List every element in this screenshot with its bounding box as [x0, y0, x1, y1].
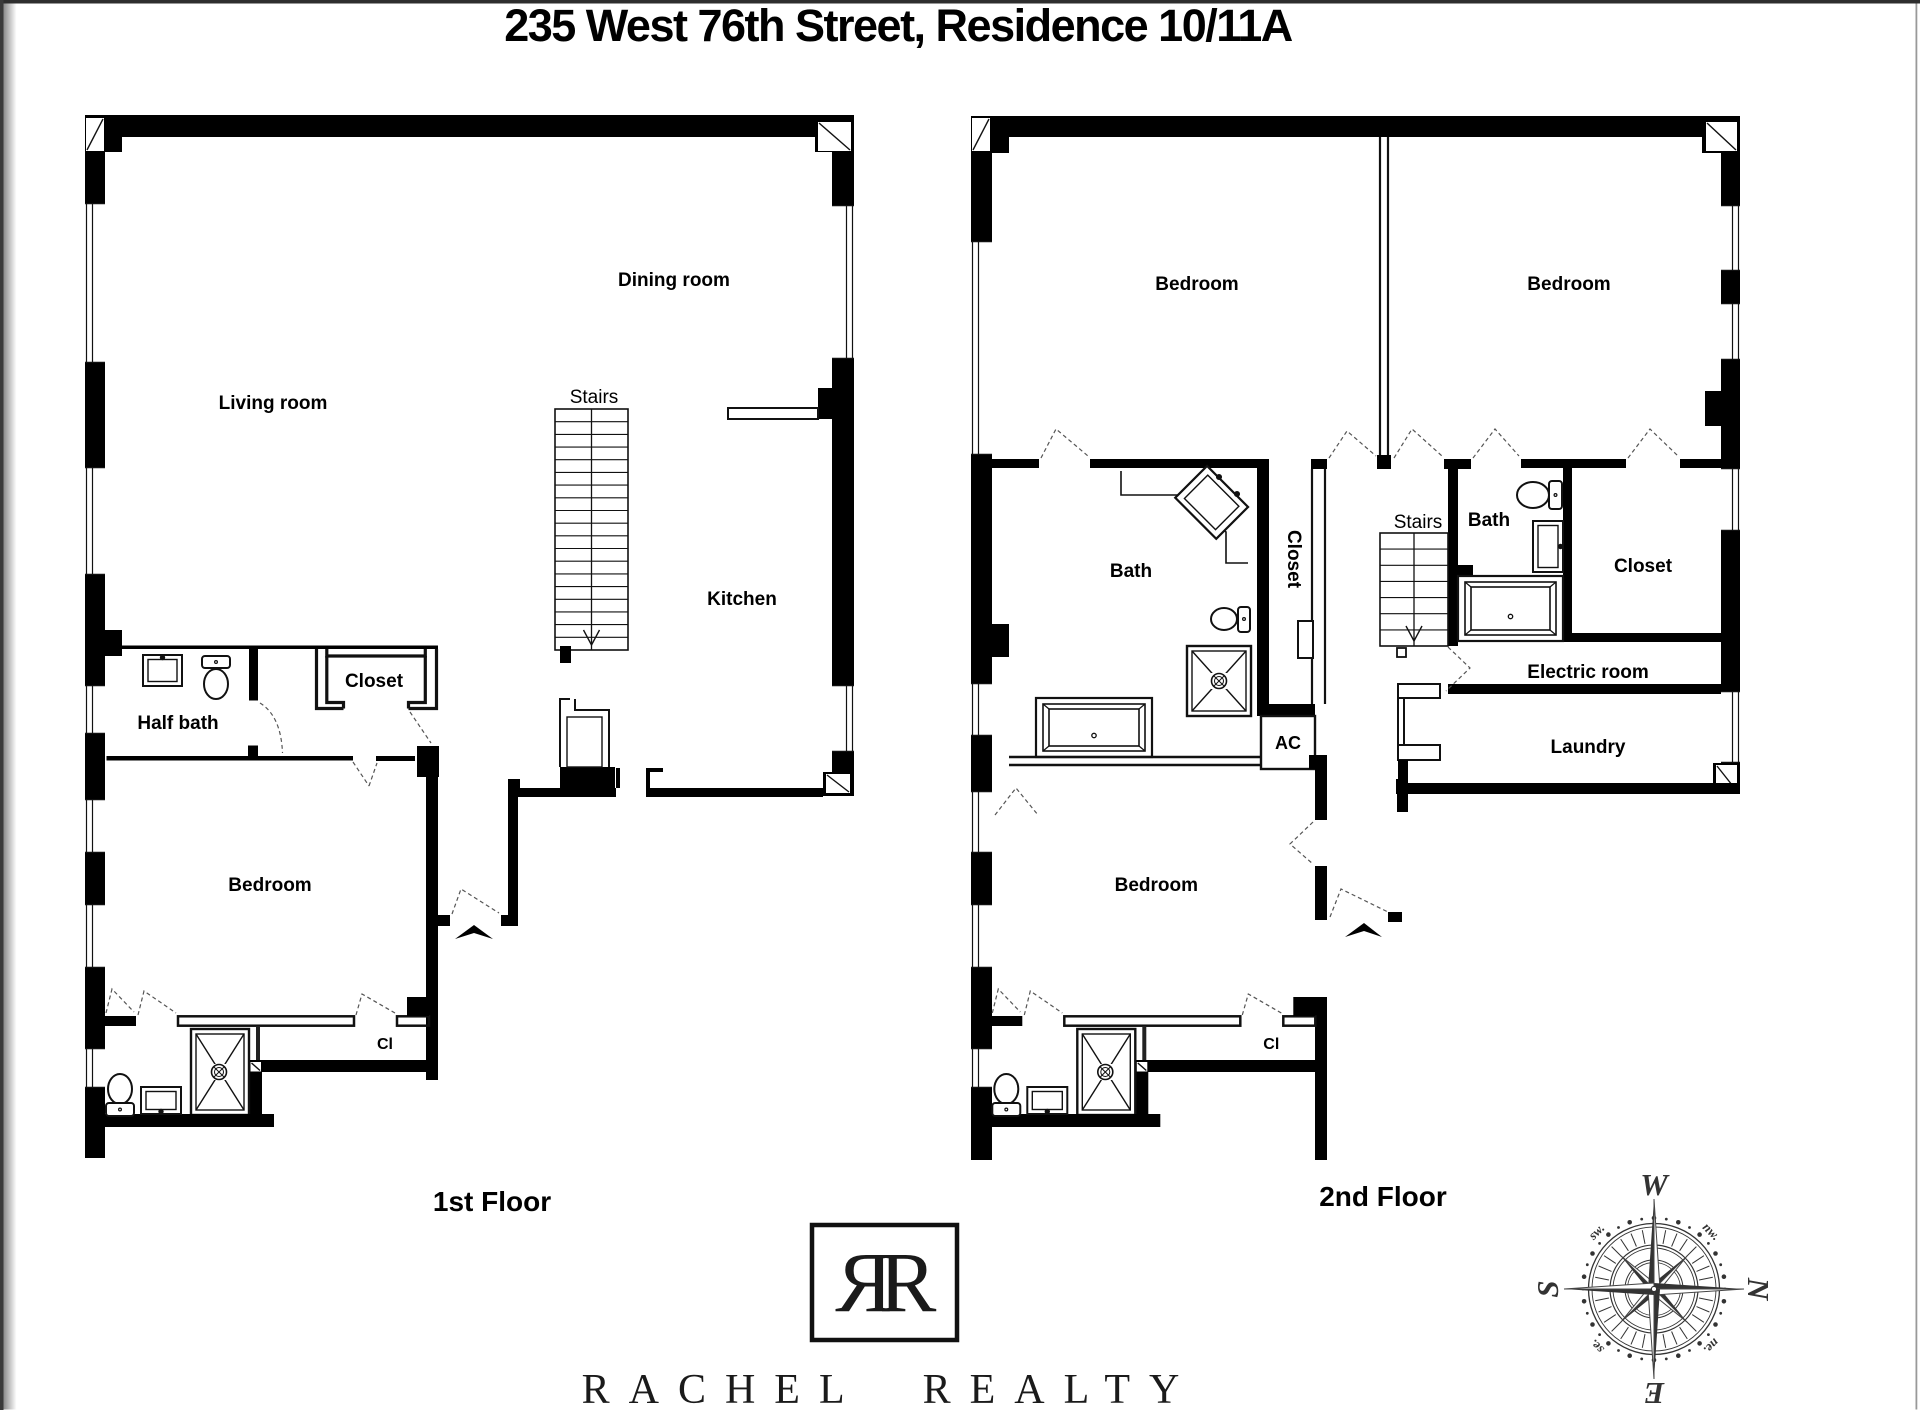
svg-text:Half bath: Half bath [137, 713, 218, 734]
svg-text:W: W [1640, 1167, 1670, 1202]
svg-text:Bath: Bath [1468, 510, 1510, 531]
svg-text:Laundry: Laundry [1551, 737, 1626, 758]
svg-text:Closet: Closet [1283, 530, 1304, 589]
svg-text:N: N [1741, 1277, 1776, 1302]
svg-text:Closet: Closet [1614, 556, 1673, 577]
svg-text:Bath: Bath [1110, 561, 1152, 582]
svg-text:Bedroom: Bedroom [228, 875, 311, 896]
svg-text:2nd Floor: 2nd Floor [1319, 1181, 1447, 1212]
svg-text:Closet: Closet [345, 671, 404, 692]
svg-text:235 West 76th Street, Residenc: 235 West 76th Street, Residence 10/11A [504, 0, 1293, 51]
svg-text:AC: AC [1275, 733, 1301, 753]
svg-text:Stairs: Stairs [570, 387, 619, 408]
svg-text:Living room: Living room [219, 393, 328, 414]
svg-text:Dining room: Dining room [618, 270, 730, 291]
svg-text:Bedroom: Bedroom [1527, 274, 1610, 295]
svg-text:RACHEL REALTY: RACHEL REALTY [582, 1367, 1199, 1410]
svg-text:E: E [1644, 1376, 1666, 1410]
svg-text:Electric room: Electric room [1527, 662, 1648, 683]
svg-text:Bedroom: Bedroom [1115, 875, 1198, 896]
svg-text:Stairs: Stairs [1394, 512, 1443, 533]
svg-text:1st Floor: 1st Floor [433, 1186, 551, 1217]
svg-text:S: S [1530, 1280, 1565, 1297]
svg-text:Cl: Cl [377, 1036, 393, 1053]
svg-text:Kitchen: Kitchen [707, 589, 777, 610]
svg-text:R: R [879, 1234, 937, 1330]
svg-text:Bedroom: Bedroom [1155, 274, 1238, 295]
svg-text:Cl: Cl [1263, 1036, 1279, 1053]
